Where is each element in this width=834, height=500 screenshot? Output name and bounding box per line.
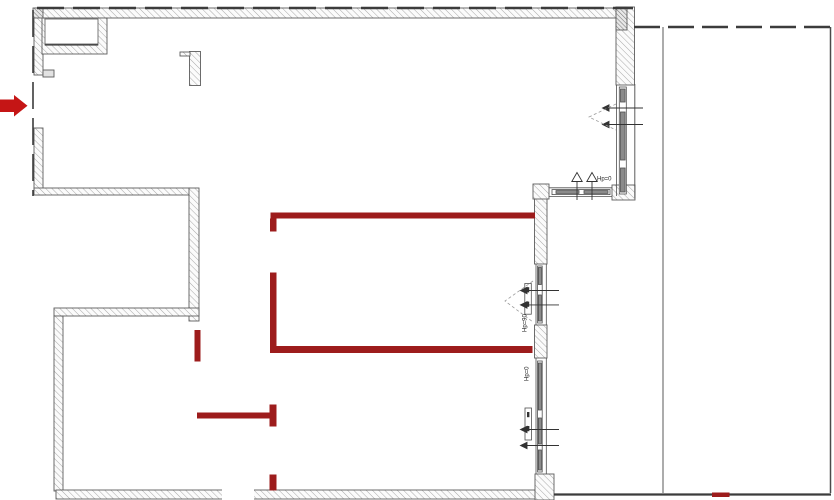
svg-text:Hp=0: Hp=0 — [597, 177, 612, 183]
svg-text:Hp=0: Hp=0 — [525, 366, 531, 381]
